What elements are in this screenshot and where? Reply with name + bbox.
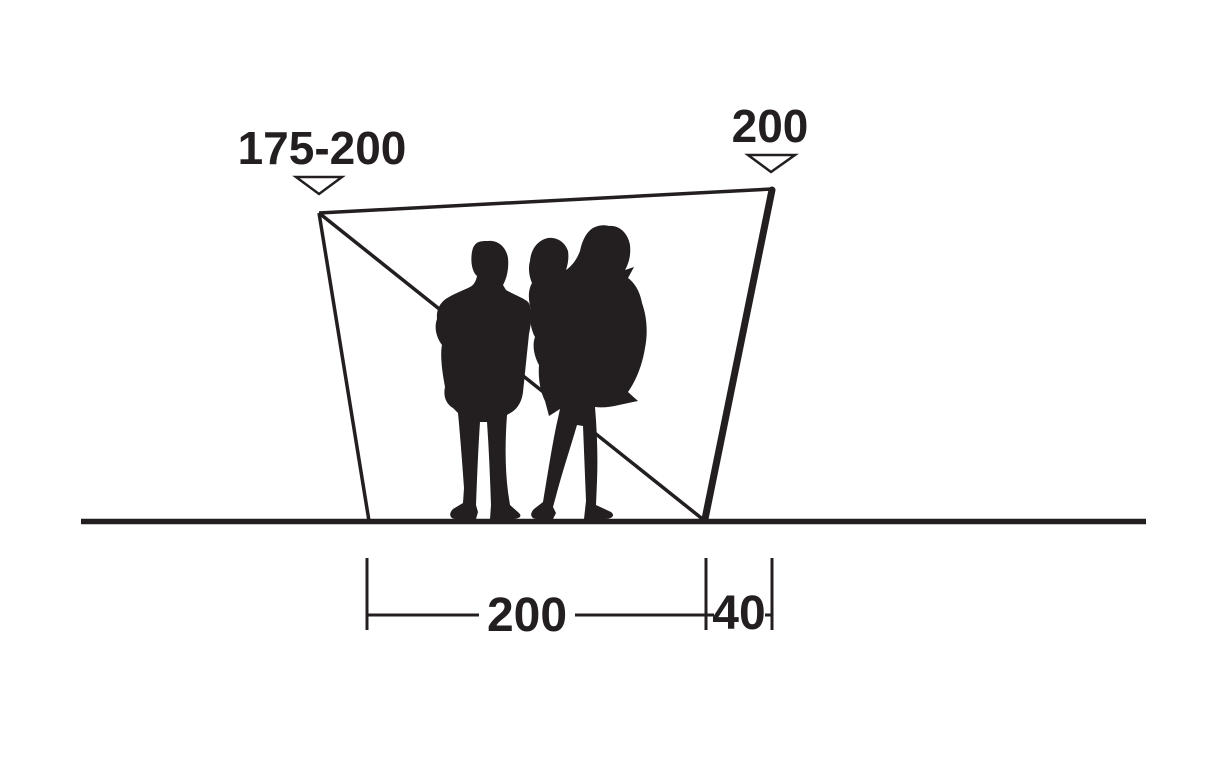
adult-carrying-child-silhouette xyxy=(529,225,647,519)
down-triangle-marker-pole-height xyxy=(748,155,795,172)
tarp-front-edge-line xyxy=(319,213,369,521)
rear-pole-line xyxy=(705,190,772,519)
down-triangle-marker-front-height xyxy=(296,177,342,194)
adult-silhouette xyxy=(436,241,532,519)
pole-height-label: 200 xyxy=(732,100,809,152)
pole-offset-label: 40 xyxy=(712,587,765,640)
front-height-label: 175-200 xyxy=(238,122,407,174)
tarp-top-edge-line xyxy=(319,189,772,213)
diagram-stage: 175-200 200 200 40 xyxy=(0,0,1230,781)
tent-dimension-diagram: 175-200 200 200 40 xyxy=(0,0,1230,781)
floor-depth-label: 200 xyxy=(487,589,567,642)
